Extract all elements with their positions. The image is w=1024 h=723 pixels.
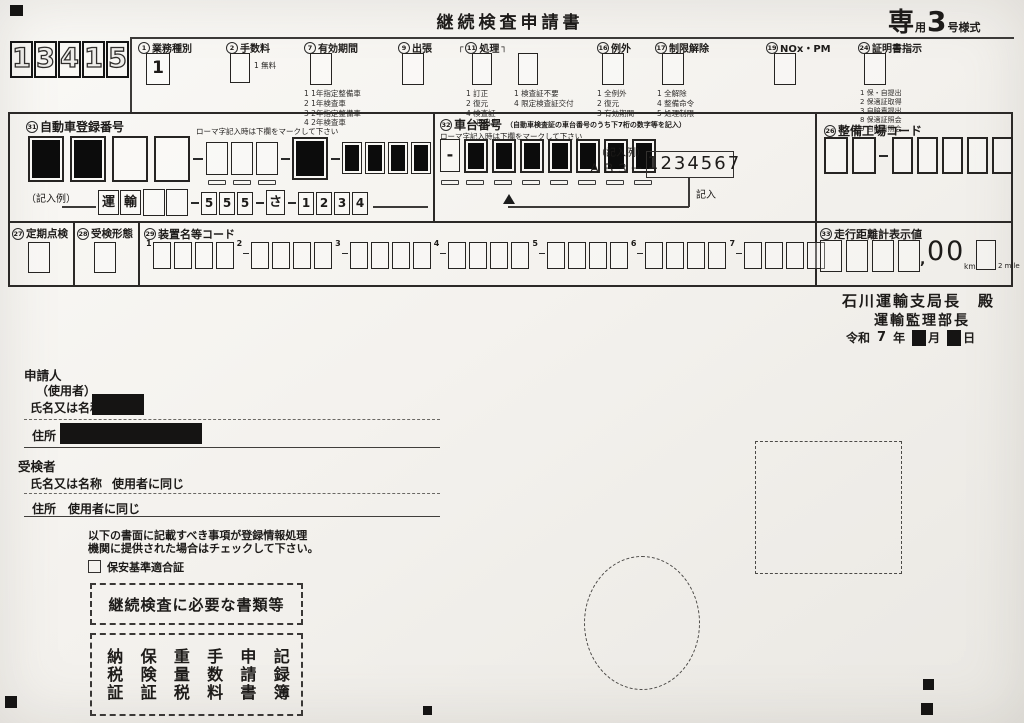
reg-box-small <box>231 142 253 175</box>
docs-title-box: 継続検査に必要な書類等 <box>90 583 303 625</box>
ruled-line-solid <box>24 447 440 448</box>
mark-slot <box>578 180 596 185</box>
odometer-box <box>846 240 868 272</box>
example-kanji-box: 輸 <box>120 190 141 215</box>
teiki-label: 27定期点検 <box>12 226 68 241</box>
example-digit-box: 4 <box>352 192 368 215</box>
shori-box-2 <box>518 53 538 85</box>
examinee-title: 受検者 <box>18 456 56 475</box>
devices-groups: 1 2 3 4 5 6 7 <box>146 239 812 269</box>
corner-mark <box>923 679 934 690</box>
juken-label: 28受検形態 <box>77 226 133 241</box>
chassis-example-value: 1234567 <box>647 153 741 174</box>
style-char-large: 専 <box>888 2 914 39</box>
docs-item: 重量税 <box>168 648 192 702</box>
docs-item: 手数料 <box>201 648 225 702</box>
reg-box-small <box>388 142 408 174</box>
docs-title: 継続検査に必要な書類等 <box>108 594 284 615</box>
odometer-mile-unit: 2 mile <box>998 262 1020 270</box>
mark-slot <box>606 180 624 185</box>
chassis-example-prefix: ＡＢ３－ <box>588 158 644 177</box>
odometer-comma: , <box>920 252 925 268</box>
table-divider-v <box>73 222 75 285</box>
corner-mark <box>423 706 432 715</box>
ruled-line-solid <box>24 516 440 517</box>
separator-dash <box>288 202 296 204</box>
paper-form: 継続検査申請書 専 用 3 号様式 1 3 4 1 5 1業務種別 1 2手数料… <box>0 0 1024 723</box>
table-divider-v <box>433 113 435 222</box>
chassis-example-value-box: 1234567 <box>646 151 734 178</box>
docs-item: 保険証 <box>135 648 159 702</box>
separator-dash <box>256 202 264 204</box>
hoan-checkbox-label: 保安基準適合証 <box>107 559 184 575</box>
example-digit-box: 5 <box>219 192 235 215</box>
mark-slot <box>634 180 652 185</box>
device-group: 4 <box>434 239 533 269</box>
stamp-digit: 1 <box>84 43 103 74</box>
chassis-arrow-label: 記入 <box>696 186 716 201</box>
odometer-zeros: 00 <box>927 236 965 267</box>
form-style-number: 専 用 3 号様式 <box>888 2 981 39</box>
separator-dash <box>281 158 290 160</box>
docs-item: 記録簿 <box>268 648 292 702</box>
example-digit-box: 1 <box>298 192 314 215</box>
table-divider-h <box>9 221 1012 223</box>
chassis-box <box>464 139 488 173</box>
reg-box <box>154 136 190 182</box>
date-day-redaction <box>947 330 961 346</box>
factory-box <box>852 137 876 174</box>
stamp-digit: 3 <box>36 43 55 74</box>
arrow-line-v <box>688 178 690 207</box>
shori-box-1 <box>472 53 492 85</box>
device-group: 5 <box>532 239 631 269</box>
device-group: 2 <box>237 239 336 269</box>
device-group: 3 <box>335 239 434 269</box>
mark-slot <box>522 180 540 185</box>
odometer-box <box>872 240 894 272</box>
teiki-box <box>28 242 50 273</box>
separator-dash <box>879 155 888 157</box>
odometer-box <box>820 240 842 272</box>
stamp-circle-area <box>584 556 700 690</box>
header-border-top <box>130 37 1014 39</box>
chassis-example-label: （記入例） <box>596 144 646 159</box>
reg-box <box>292 137 328 180</box>
example-digit-box: 5 <box>237 192 253 215</box>
docs-item: 申請書 <box>234 648 258 702</box>
shori-options-2: 1 検査証不要4 限定検査証交付 <box>514 89 574 109</box>
tesuryo-note: 1 無料 <box>254 60 276 71</box>
chassis-box <box>548 139 572 173</box>
examinee-name-label: 氏名又は名称 <box>30 475 102 492</box>
factory-box <box>992 137 1013 174</box>
gyomu-box: 1 <box>146 53 170 85</box>
form-title: 継続検査申請書 <box>420 8 600 33</box>
date-year-unit: 年 <box>893 329 905 346</box>
chassis-sub-note: （自動車検査証の車台番号のうち下7桁の数字等を記入） <box>506 120 686 130</box>
stamp-digit: 4 <box>60 43 79 74</box>
date-year: 7 <box>877 330 886 345</box>
addressee-line2: 運輸監理部長 <box>874 310 970 330</box>
style-char-large: 3 <box>927 5 946 38</box>
shomei-box <box>864 53 886 85</box>
arrow-up-icon <box>503 194 515 204</box>
reg-number-label: 31自動車登録番号 <box>26 118 124 135</box>
date-day-unit: 日 <box>963 329 975 346</box>
examinee-addr-label: 住所 <box>32 500 56 517</box>
chassis-box <box>520 139 544 173</box>
example-connector <box>373 206 428 208</box>
reg-box-small <box>411 142 431 174</box>
docs-item: 納税証 <box>101 648 125 702</box>
chassis-box <box>492 139 516 173</box>
yuko-box <box>310 53 332 85</box>
corner-mark <box>10 5 23 16</box>
example-kanji-box: 運 <box>98 190 119 215</box>
ruled-line-dashed <box>24 493 440 494</box>
table-divider-v <box>815 113 817 222</box>
factory-box <box>892 137 913 174</box>
corner-mark <box>5 696 17 708</box>
reigai-box <box>602 53 624 85</box>
reg-box <box>70 136 106 182</box>
example-digit-box: 5 <box>201 192 217 215</box>
device-group: 1 <box>146 239 237 269</box>
factory-box <box>824 137 848 174</box>
stamp-digit: 1 <box>12 43 31 74</box>
example-empty-box <box>143 189 165 216</box>
separator-dash <box>191 202 199 204</box>
chassis-dash-box: - <box>440 139 460 172</box>
mark-slot <box>550 180 568 185</box>
examinee-name-row: 氏名又は名称 使用者に同じ <box>30 475 184 492</box>
odometer-km-unit: km <box>964 262 976 271</box>
addressee-line1: 石川運輸支局長 殿 <box>842 290 995 311</box>
device-group: 7 <box>729 239 828 269</box>
reg-box <box>28 136 64 182</box>
hoan-checkbox <box>88 560 101 573</box>
example-kana-box: さ <box>266 190 285 215</box>
factory-box <box>967 137 988 174</box>
tesuryo-box <box>230 53 250 83</box>
juken-box <box>94 242 116 273</box>
mark-slot <box>208 180 226 185</box>
table-divider-v <box>138 222 140 285</box>
examinee-addr-row: 住所 使用者に同じ <box>32 500 140 517</box>
corner-mark <box>921 703 933 715</box>
applicant-addr-label: 住所 <box>32 427 56 444</box>
odometer-box <box>898 240 920 272</box>
examinee-addr-value: 使用者に同じ <box>68 500 140 517</box>
stamp-digit: 5 <box>108 43 127 74</box>
separator-dash <box>193 158 203 160</box>
style-char-small: 用 <box>915 19 926 35</box>
applicant-subtitle: （使用者） <box>36 382 96 399</box>
header-border-left <box>130 37 132 112</box>
stamp-rect-area <box>755 441 902 574</box>
mark-slot <box>466 180 484 185</box>
device-group: 6 <box>631 239 730 269</box>
date-month-unit: 月 <box>928 329 940 346</box>
examinee-name-value: 使用者に同じ <box>112 475 184 492</box>
gyomu-value: 1 <box>152 58 164 78</box>
style-char-small: 号様式 <box>948 19 981 35</box>
mark-slot <box>494 180 512 185</box>
reg-box-small <box>256 142 278 175</box>
example-digit-box: 2 <box>316 192 332 215</box>
factory-box <box>917 137 938 174</box>
docs-list-box: 納税証 保険証 重量税 手数料 申請書 記録簿 <box>90 633 303 716</box>
mark-slot <box>441 180 459 185</box>
reg-box-small <box>342 142 362 174</box>
factory-box <box>942 137 963 174</box>
example-connector <box>62 206 96 208</box>
nox-box <box>774 53 796 85</box>
odometer-mile-box <box>976 240 996 270</box>
arrow-line-h <box>508 206 689 208</box>
mark-slot <box>258 180 276 185</box>
reg-roman-note: ローマ字記入時は下欄をマークして下さい <box>196 126 338 137</box>
separator-dash <box>331 158 340 160</box>
example-empty-box <box>166 189 188 216</box>
mark-slot <box>233 180 251 185</box>
date-line: 令和 7 年 月 日 <box>846 329 975 346</box>
applicant-addr-redaction <box>60 423 202 444</box>
ruled-line-dashed <box>24 419 440 420</box>
reg-box-small <box>206 142 228 175</box>
shutcho-box <box>402 53 424 85</box>
seigen-box <box>662 53 684 85</box>
reg-box-small <box>365 142 385 174</box>
example-digit-box: 3 <box>334 192 350 215</box>
reg-example-label: （記入例） <box>26 190 76 205</box>
applicant-name-redaction <box>92 394 144 415</box>
reg-box <box>112 136 148 182</box>
date-era: 令和 <box>846 329 870 346</box>
notice-line2: 機関に提供された場合はチェックして下さい。 <box>88 540 319 556</box>
date-month-redaction <box>912 330 926 346</box>
